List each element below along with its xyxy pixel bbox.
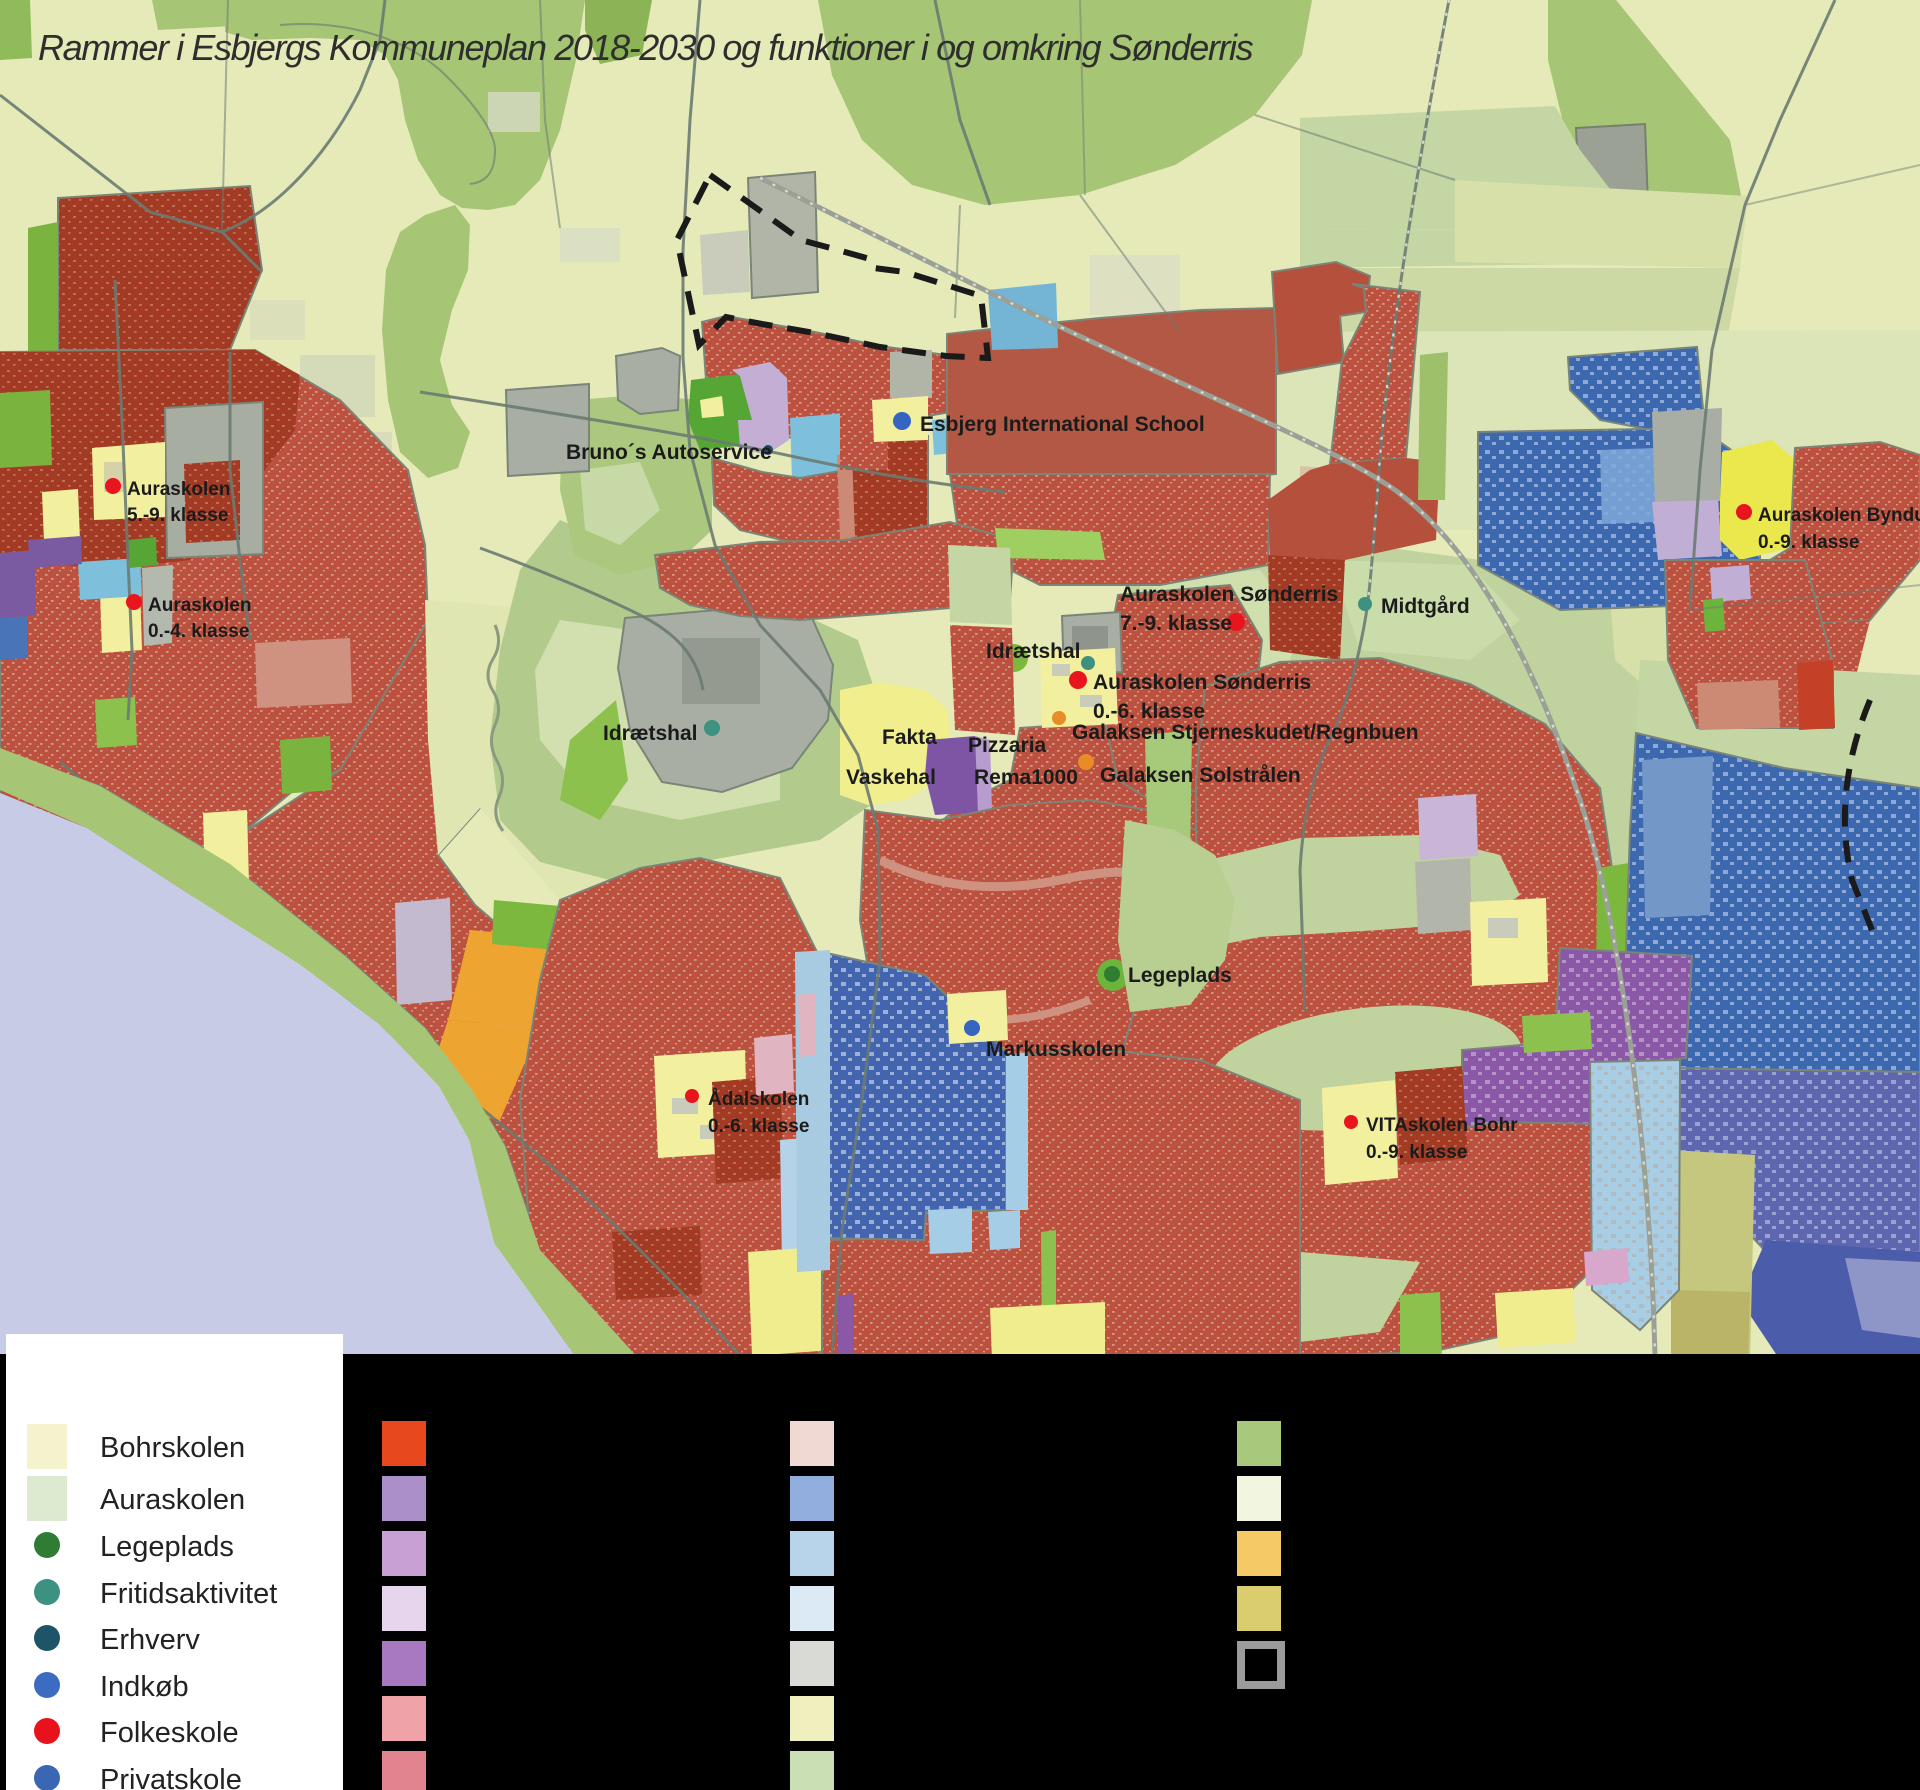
svg-text:Bohrskolen: Bohrskolen xyxy=(100,1432,245,1464)
svg-text:Markusskolen: Markusskolen xyxy=(986,1038,1126,1061)
svg-text:Idrætshal: Idrætshal xyxy=(986,640,1081,663)
svg-text:Bruno´s Autoservice: Bruno´s Autoservice xyxy=(566,441,772,464)
svg-text:Galaksen Stjerneskudet/Regnbue: Galaksen Stjerneskudet/Regnbuen xyxy=(1072,721,1419,744)
svg-text:Auraskolen Sønderris: Auraskolen Sønderris xyxy=(1093,671,1311,694)
svg-text:0.-9. klasse: 0.-9. klasse xyxy=(1366,1142,1467,1163)
svg-text:Auraskolen: Auraskolen xyxy=(127,479,230,500)
svg-text:0.-4. klasse: 0.-4. klasse xyxy=(148,621,249,642)
svg-text:Esbjerg International School: Esbjerg International School xyxy=(920,413,1205,436)
svg-text:Galaksen Solstrålen: Galaksen Solstrålen xyxy=(1100,764,1301,787)
svg-text:Fakta: Fakta xyxy=(882,726,937,749)
svg-text:Indkøb: Indkøb xyxy=(100,1671,189,1703)
svg-text:Rammer i Esbjergs Kommuneplan: Rammer i Esbjergs Kommuneplan 2018-2030 … xyxy=(38,27,1254,68)
svg-text:Auraskolen: Auraskolen xyxy=(100,1484,245,1516)
svg-text:Ådalskolen: Ådalskolen xyxy=(708,1089,809,1110)
svg-text:Idrætshal: Idrætshal xyxy=(603,722,698,745)
svg-text:5.-9. klasse: 5.-9. klasse xyxy=(127,505,228,526)
svg-text:Midtgård: Midtgård xyxy=(1381,595,1470,618)
svg-text:Auraskolen: Auraskolen xyxy=(148,595,251,616)
svg-text:0.-6. klasse: 0.-6. klasse xyxy=(708,1116,809,1137)
svg-text:Vaskehal: Vaskehal xyxy=(846,766,936,789)
svg-text:Fritidsaktivitet: Fritidsaktivitet xyxy=(100,1578,277,1610)
svg-text:Legeplads: Legeplads xyxy=(1128,964,1232,987)
svg-text:Folkeskole: Folkeskole xyxy=(100,1717,239,1749)
svg-text:Privatskole: Privatskole xyxy=(100,1764,242,1790)
svg-text:Pizzaria: Pizzaria xyxy=(968,734,1047,757)
svg-text:0.-6. klasse: 0.-6. klasse xyxy=(1093,700,1205,723)
svg-text:Auraskolen Sønderris: Auraskolen Sønderris xyxy=(1120,583,1338,606)
svg-text:7.-9. klasse: 7.-9. klasse xyxy=(1120,612,1232,635)
svg-text:VITAskolen Bohr: VITAskolen Bohr xyxy=(1366,1115,1518,1136)
svg-text:Erhverv: Erhverv xyxy=(100,1624,200,1656)
svg-text:0.-9. klasse: 0.-9. klasse xyxy=(1758,532,1859,553)
svg-text:Auraskolen Byndum: Auraskolen Byndum xyxy=(1758,505,1920,526)
svg-text:Rema1000: Rema1000 xyxy=(974,766,1078,789)
svg-text:Legeplads: Legeplads xyxy=(100,1531,234,1563)
